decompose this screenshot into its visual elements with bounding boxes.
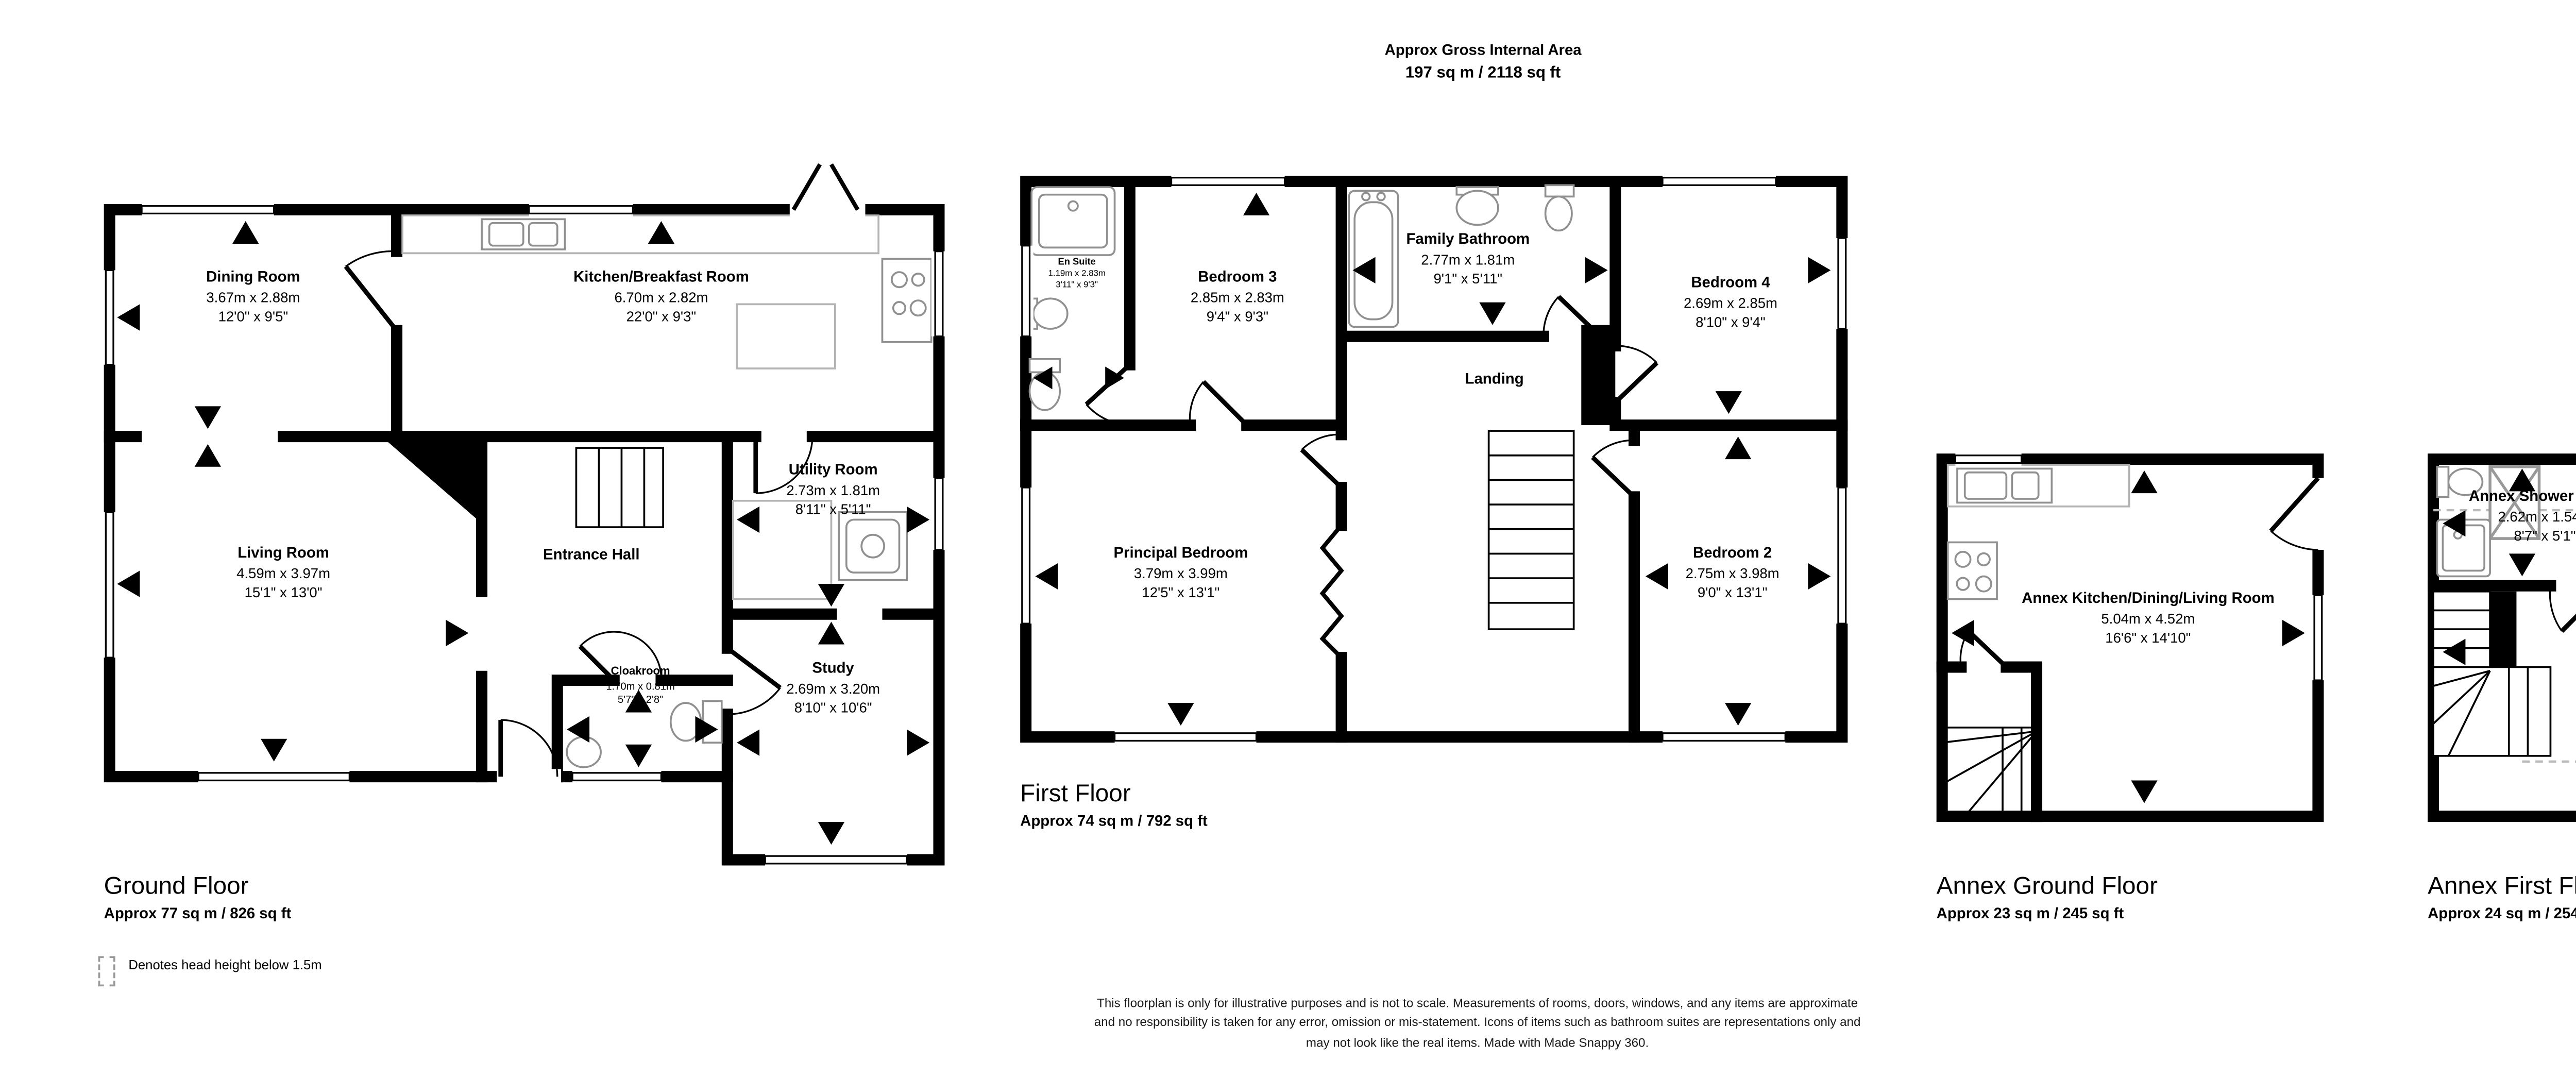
ensuite-basin-icon	[1028, 298, 1067, 329]
ensuite-shower-icon	[1031, 187, 1114, 255]
room-label-dining: Dining Room 3.67m x 2.88m 12'0" x 9'5"	[206, 268, 300, 326]
caption-first-floor: First Floor	[1020, 779, 1131, 807]
room-label-bedroom3: Bedroom 3 2.85m x 2.83m 9'4" x 9'3"	[1191, 268, 1284, 326]
room-label-utility: Utility Room 2.73m x 1.81m 8'11" x 5'11"	[786, 461, 880, 519]
first-stairs	[1489, 431, 1574, 629]
room-label-ensuite: En Suite 1.19m x 2.83m 3'11" x 9'3"	[1048, 257, 1105, 290]
area-annex-ground-floor: Approx 23 sq m / 245 sq ft	[1937, 905, 2124, 924]
header-title: Approx Gross Internal Area	[1385, 42, 1582, 62]
gross-internal-area-header: Approx Gross Internal Area 197 sq m / 21…	[1385, 42, 1582, 81]
room-label-entrance-hall: Entrance Hall	[543, 546, 640, 566]
room-label-landing: Landing	[1465, 371, 1524, 391]
room-label-bedroom4: Bedroom 4 2.69m x 2.85m 8'10" x 9'4"	[1684, 274, 1777, 332]
disclaimer-line1: This floorplan is only for illustrative …	[1094, 996, 1861, 1016]
caption-ground-floor: Ground Floor	[104, 871, 249, 899]
disclaimer-line3: may not look like the real items. Made w…	[1094, 1035, 1861, 1054]
head-height-icon	[98, 956, 115, 987]
disclaimer: This floorplan is only for illustrative …	[1094, 996, 1861, 1054]
caption-annex-ground-floor: Annex Ground Floor	[1937, 871, 2158, 899]
washing-machine-icon	[839, 512, 907, 580]
annex-sink-icon	[1957, 468, 2052, 502]
area-first-floor: Approx 74 sq m / 792 sq ft	[1020, 813, 1208, 832]
first-void-block	[1581, 325, 1615, 425]
room-label-living: Living Room 4.59m x 3.97m 15'1" x 13'0"	[236, 544, 330, 602]
kitchen-sink-icon	[482, 219, 565, 249]
area-annex-first-floor: Approx 24 sq m / 254 sq ft	[2428, 905, 2576, 924]
caption-annex-first-floor: Annex First Floor	[2428, 871, 2576, 899]
legend-label: Denotes head height below 1.5m	[128, 960, 321, 973]
room-label-principal-bedroom: Principal Bedroom 3.79m x 3.99m 12'5" x …	[1113, 544, 1248, 602]
annex-hob-icon	[1948, 542, 1997, 599]
bathroom-basin-icon	[1456, 187, 1498, 225]
header-area: 197 sq m / 2118 sq ft	[1385, 61, 1582, 81]
room-label-annex-shower-room: Annex Shower Room 2.62m x 1.54m 8'7" x 5…	[2469, 487, 2576, 545]
cloakroom-basin-icon	[567, 737, 601, 767]
room-label-annex-kitchen-dining-living: Annex Kitchen/Dining/Living Room 5.04m x…	[2022, 590, 2275, 647]
room-label-family-bathroom: Family Bathroom 2.77m x 1.81m 9'1" x 5'1…	[1406, 230, 1530, 288]
floorplan-page: Approx Gross Internal Area 197 sq m / 21…	[0, 0, 2576, 1077]
room-label-bedroom2: Bedroom 2 2.75m x 3.98m 9'0" x 13'1"	[1686, 544, 1780, 602]
room-label-study: Study 2.69m x 3.20m 8'10" x 10'6"	[786, 660, 880, 717]
bathroom-toilet-icon	[1546, 185, 1574, 230]
room-label-cloakroom: Cloakroom 1.70m x 0.81m 5'7" x 2'8"	[606, 667, 674, 708]
disclaimer-line2: and no responsibility is taken for any e…	[1094, 1015, 1861, 1035]
area-ground-floor: Approx 77 sq m / 826 sq ft	[104, 905, 292, 924]
room-label-kitchen: Kitchen/Breakfast Room 6.70m x 2.82m 22'…	[573, 268, 749, 326]
ground-stairs	[576, 448, 663, 527]
hob-icon	[882, 259, 931, 342]
french-doors	[790, 164, 866, 217]
